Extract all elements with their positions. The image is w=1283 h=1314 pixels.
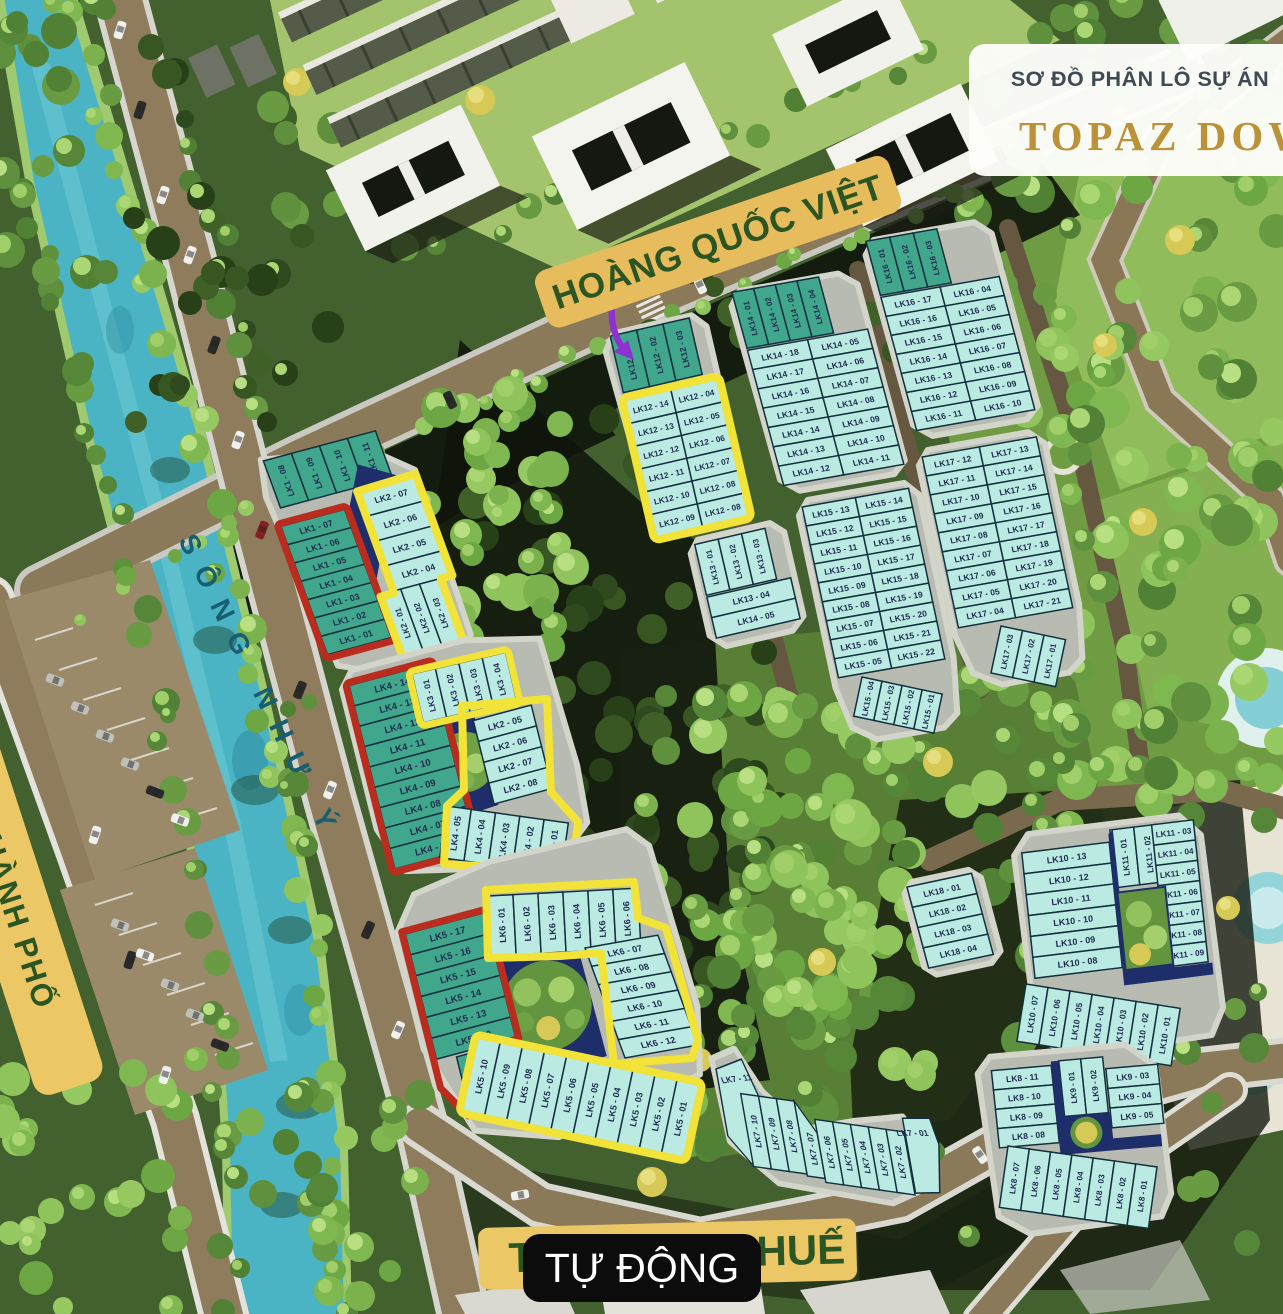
- svg-text:LK6 - 02: LK6 - 02: [521, 906, 533, 941]
- svg-text:SƠ ĐỒ PHÂN LÔ SỰ ÁN: SƠ ĐỒ PHÂN LÔ SỰ ÁN: [1011, 66, 1269, 91]
- svg-text:LK7 - 01: LK7 - 01: [895, 1128, 930, 1138]
- svg-text:TOPAZ DOWN: TOPAZ DOWN: [1019, 113, 1283, 159]
- svg-text:HUẾ: HUẾ: [756, 1225, 846, 1274]
- svg-text:TỰ ĐỘNG: TỰ ĐỘNG: [545, 1245, 739, 1291]
- svg-text:LK6 - 05: LK6 - 05: [596, 902, 608, 937]
- svg-text:LK6 - 04: LK6 - 04: [571, 904, 583, 939]
- svg-text:LK6 - 03: LK6 - 03: [546, 905, 558, 940]
- svg-text:LK6 - 06: LK6 - 06: [621, 901, 633, 936]
- svg-text:LK6 - 01: LK6 - 01: [496, 908, 508, 943]
